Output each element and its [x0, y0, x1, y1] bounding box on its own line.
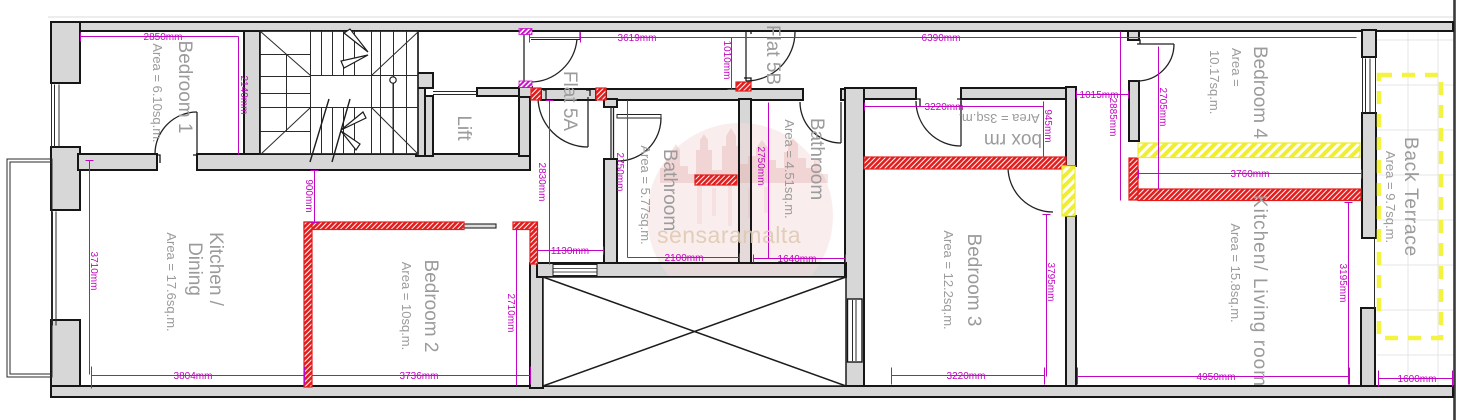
svg-text:box rm: box rm	[984, 129, 1042, 150]
svg-text:Area =: Area =	[1229, 48, 1244, 87]
svg-text:Bathroom: Bathroom	[659, 149, 680, 231]
svg-text:Area = 17.6sq.m.: Area = 17.6sq.m.	[164, 232, 179, 331]
svg-text:900mm: 900mm	[303, 179, 314, 212]
svg-text:Bedroom 1: Bedroom 1	[174, 41, 195, 134]
svg-text:2100mm: 2100mm	[665, 253, 704, 264]
svg-text:2710mm: 2710mm	[505, 294, 516, 333]
svg-text:Bedroom 2: Bedroom 2	[420, 260, 441, 353]
svg-text:4950mm: 4950mm	[1197, 372, 1236, 383]
svg-text:Back Terrace: Back Terrace	[1400, 137, 1421, 257]
svg-text:Flat 5A: Flat 5A	[559, 71, 580, 132]
svg-text:Bathroom: Bathroom	[806, 118, 827, 200]
svg-text:Lift: Lift	[453, 115, 474, 141]
svg-text:945mm: 945mm	[1042, 109, 1053, 142]
svg-text:Area = 3sq.m.: Area = 3sq.m.	[958, 111, 1039, 126]
svg-text:sensaramalta: sensaramalta	[657, 222, 801, 248]
svg-text:3736mm: 3736mm	[400, 371, 439, 382]
svg-text:Area = 9.7sq.m.: Area = 9.7sq.m.	[1383, 151, 1398, 243]
svg-text:Area = 4.51sq.m.: Area = 4.51sq.m.	[782, 119, 797, 218]
svg-text:Bedroom 4: Bedroom 4	[1249, 46, 1270, 139]
svg-text:Area = 12.2sq.m.: Area = 12.2sq.m.	[941, 230, 956, 329]
svg-text:3710mm: 3710mm	[88, 252, 99, 291]
svg-text:Area = 10sq.m.: Area = 10sq.m.	[399, 262, 414, 351]
svg-text:1600mm: 1600mm	[1398, 374, 1437, 385]
svg-text:2885mm: 2885mm	[1107, 98, 1118, 137]
svg-text:Area = 6.10sq.m.: Area = 6.10sq.m.	[150, 43, 165, 142]
svg-text:3804mm: 3804mm	[174, 371, 213, 382]
svg-text:Bedroom 3: Bedroom 3	[963, 234, 984, 327]
svg-text:3795mm: 3795mm	[1045, 263, 1056, 302]
svg-text:Kitchen /: Kitchen /	[205, 232, 226, 307]
svg-text:2750mm: 2750mm	[755, 147, 766, 186]
svg-text:1130mm: 1130mm	[551, 246, 589, 257]
svg-text:1010mm: 1010mm	[721, 41, 732, 80]
svg-text:2830mm: 2830mm	[536, 163, 547, 202]
svg-text:2705mm: 2705mm	[1157, 88, 1168, 127]
svg-text:Kitchen/ Living room: Kitchen/ Living room	[1249, 195, 1270, 387]
svg-text:Area = 15.8sq.m.: Area = 15.8sq.m.	[1228, 223, 1243, 322]
svg-text:2750mm: 2750mm	[614, 153, 625, 192]
svg-text:Flat 5B: Flat 5B	[762, 25, 783, 85]
svg-text:3760mm: 3760mm	[1231, 169, 1270, 180]
svg-text:3619mm: 3619mm	[618, 33, 657, 44]
svg-text:3220mm: 3220mm	[925, 102, 964, 113]
svg-text:Dining: Dining	[184, 242, 205, 296]
svg-text:1640mm: 1640mm	[778, 254, 817, 265]
svg-text:3195mm: 3195mm	[1337, 264, 1348, 303]
svg-text:Area = 5.77sq.m.: Area = 5.77sq.m.	[638, 145, 653, 244]
svg-text:2140mm: 2140mm	[238, 76, 249, 115]
svg-text:6390mm: 6390mm	[922, 33, 961, 44]
svg-text:10.17sq.m.: 10.17sq.m.	[1207, 50, 1222, 114]
svg-text:3220mm: 3220mm	[947, 371, 986, 382]
